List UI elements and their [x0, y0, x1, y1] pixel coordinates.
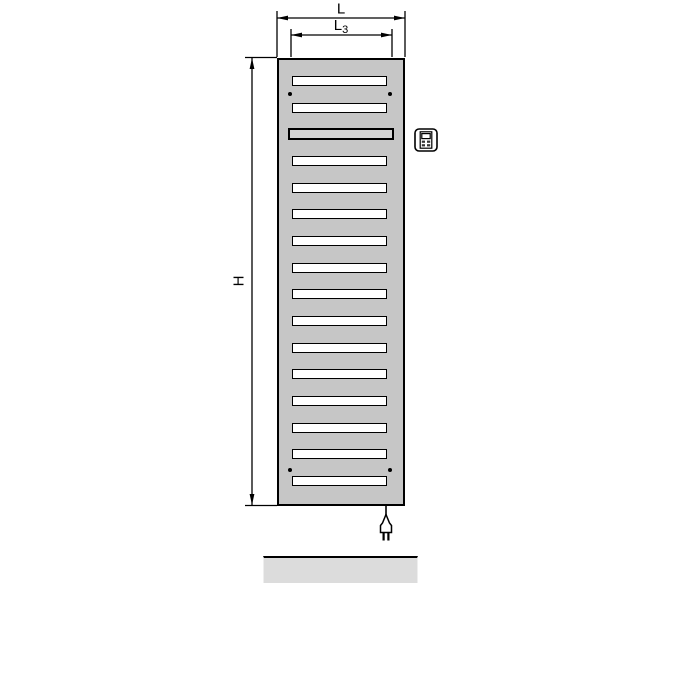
- dimension-L-label: L: [337, 2, 345, 17]
- radiator-slot: [292, 183, 387, 193]
- floor-strip: [263, 556, 418, 583]
- mounting-dot: [288, 468, 292, 472]
- dimension-H-label: H: [232, 276, 247, 287]
- radiator-body: [277, 58, 405, 506]
- radiator-slot: [292, 369, 387, 379]
- power-plug-icon: [381, 515, 392, 541]
- radiator-slot: [292, 263, 387, 273]
- arrowhead-H-top: [250, 58, 255, 69]
- arrowhead-L3-right: [381, 33, 392, 38]
- radiator-slot: [292, 289, 387, 299]
- mounting-dot: [388, 92, 392, 96]
- dimension-L3-label-sub: 3: [342, 24, 348, 36]
- arrowhead-L3-left: [291, 33, 302, 38]
- radiator-slot: [292, 396, 387, 406]
- dimension-L3-label: L3: [334, 18, 348, 36]
- mounting-dot: [388, 468, 392, 472]
- radiator-bar-slot: [288, 128, 394, 140]
- radiator-slot: [292, 76, 387, 86]
- radiator-slot: [292, 236, 387, 246]
- technical-diagram: L L3 H: [0, 0, 700, 700]
- radiator-slot: [292, 476, 387, 486]
- radiator-slot: [292, 449, 387, 459]
- radiator-slot: [292, 209, 387, 219]
- radiator-slot: [292, 423, 387, 433]
- radiator-slot: [292, 343, 387, 353]
- controller-icon: [414, 128, 438, 152]
- radiator-slot: [292, 103, 387, 113]
- arrowhead-L-right: [394, 16, 405, 21]
- radiator-slot: [292, 156, 387, 166]
- radiator-slot: [292, 316, 387, 326]
- mounting-dot: [288, 92, 292, 96]
- arrowhead-H-bottom: [250, 494, 255, 505]
- arrowhead-L-left: [277, 16, 288, 21]
